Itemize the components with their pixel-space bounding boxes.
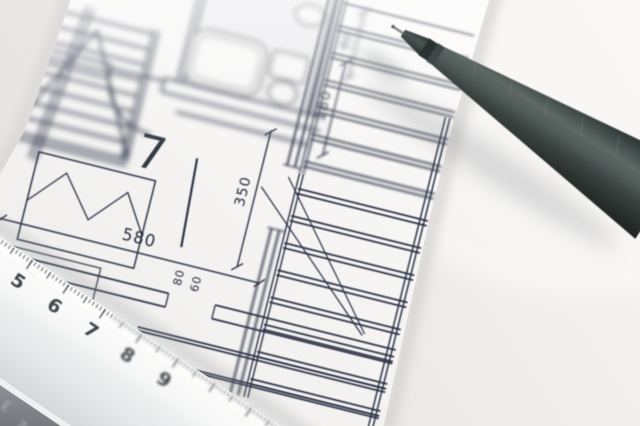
photo-scene: 80 180 xyxy=(0,0,640,426)
